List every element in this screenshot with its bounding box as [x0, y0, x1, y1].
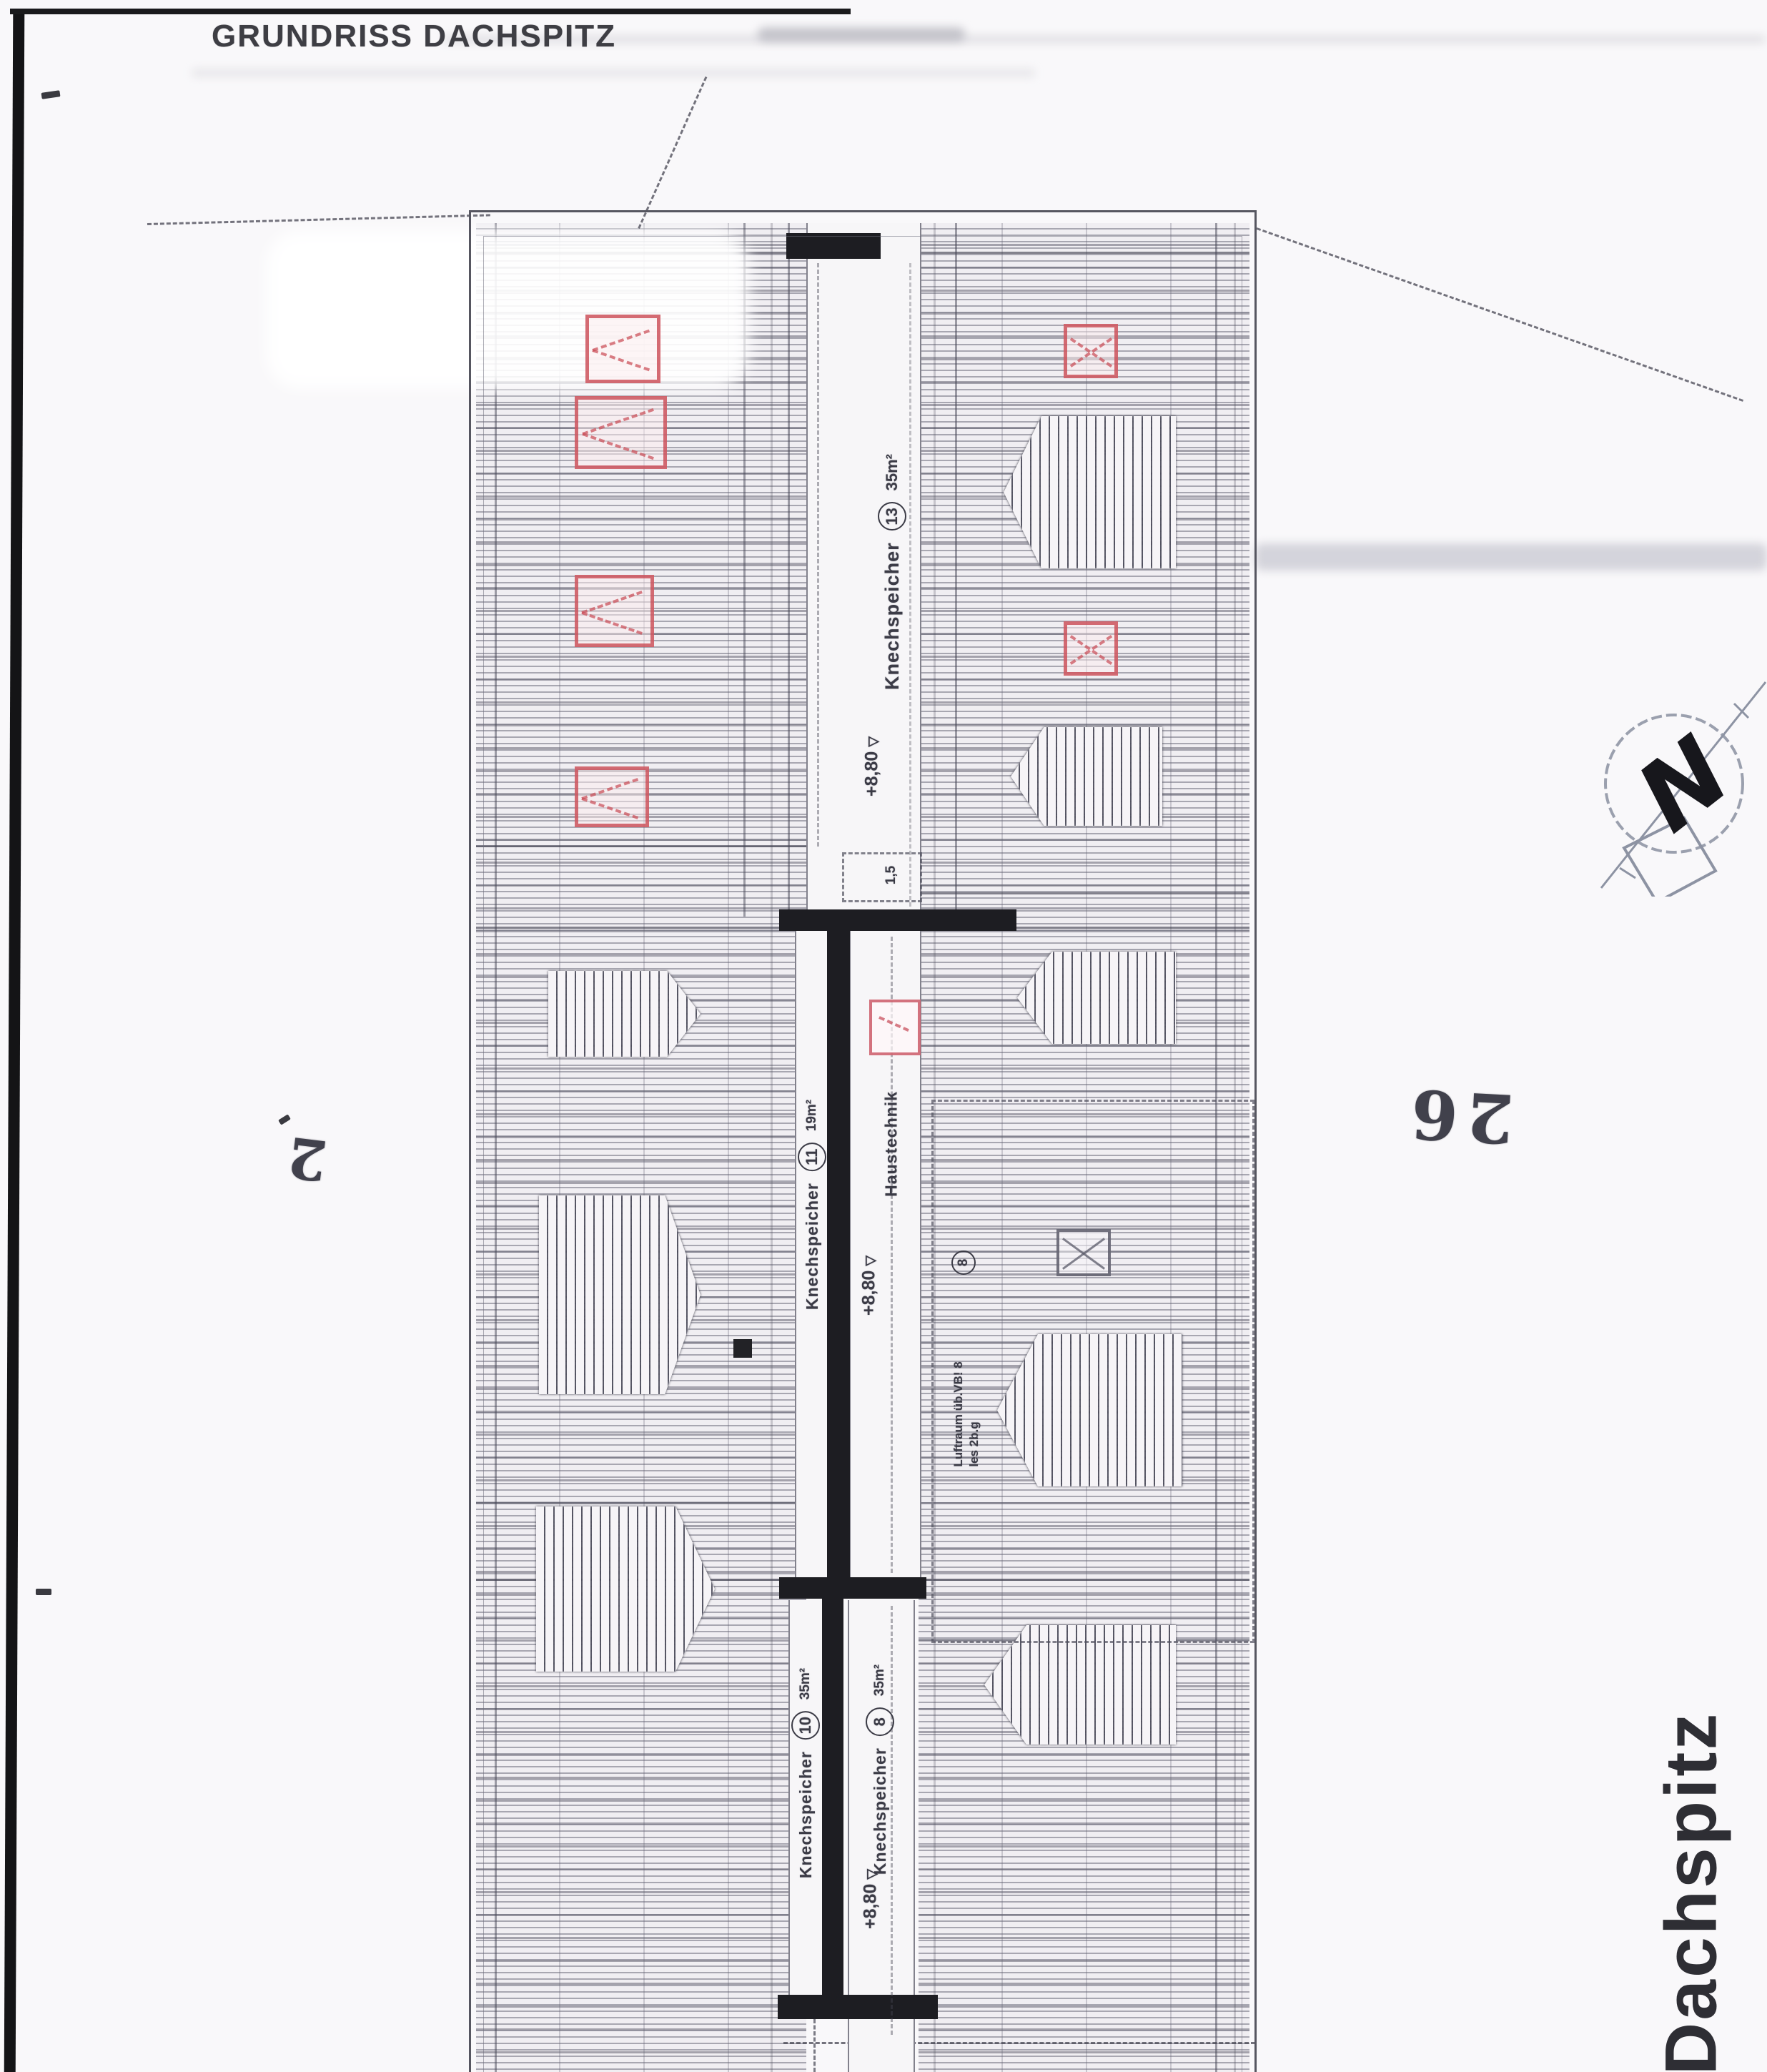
scanned-plan-page: Knechspeicher 13 35m² +8,80▽ Knechspeich…: [0, 0, 1767, 2072]
scan-mark: [36, 1589, 51, 1595]
haustechnik-shaft-red: [869, 1000, 921, 1055]
level-triangle-icon: ▽: [865, 1869, 880, 1880]
north-tick: [1620, 868, 1635, 878]
title-leader-line: [638, 77, 707, 229]
scan-mark: [41, 90, 61, 99]
room-number-circle: 8: [866, 1707, 894, 1736]
room-area: 35m²: [883, 454, 901, 490]
boundary-dashed-line: [147, 214, 490, 225]
room-name: Haustechnik: [882, 1091, 901, 1197]
room-number-circle: 10: [791, 1711, 820, 1740]
roof-marker: 8: [951, 1250, 976, 1275]
north-letter: N: [1617, 715, 1750, 853]
level-triangle-icon: ▽: [866, 736, 881, 747]
room-name: Knechspeicher: [803, 1183, 822, 1310]
scan-streak: [1255, 543, 1767, 571]
luftraum-line2: les 2b.g: [966, 1361, 982, 1466]
level-value: +8,80: [862, 751, 882, 796]
level-value: +8,80: [859, 1271, 879, 1316]
room-area: 19m²: [804, 1100, 820, 1131]
room-name: Knechspeicher: [881, 542, 904, 690]
room-number-circle: 11: [798, 1143, 826, 1171]
level-mark: +8,80▽: [859, 1255, 880, 1316]
scan-edge-left: [4, 14, 25, 2072]
roof-marker-circle: 8: [951, 1250, 976, 1275]
room-label-knechspeicher-low-left: Knechspeicher 10 35m²: [791, 1668, 820, 1878]
room-number-circle: 13: [878, 502, 906, 531]
drawing-title: GRUNDRISS DACHSPITZ: [212, 19, 616, 54]
room-area: 35m²: [872, 1664, 888, 1696]
level-mark: +8,80▽: [861, 1869, 881, 1929]
room-label-haustechnik: Haustechnik: [882, 1091, 901, 1197]
north-arrow: N: [1594, 676, 1767, 897]
handwritten-number-right: 26: [1401, 1073, 1515, 1158]
room-label-knechspeicher-mid: Knechspeicher 11 19m²: [798, 1100, 826, 1310]
boundary-dashed-line: [1256, 227, 1743, 402]
room-name: Knechspeicher: [871, 1747, 890, 1875]
plan-inner-outline: [483, 236, 1242, 2072]
luftraum-label: Luftraum üb.VB! 8 les 2b.g: [951, 1361, 982, 1466]
scan-mark: [278, 1114, 291, 1125]
sheet-label: Dachspitz: [1650, 1712, 1733, 2072]
scan-edge-top: [10, 9, 851, 14]
level-mark: +8,80▽: [862, 736, 883, 796]
room-area: 35m²: [798, 1668, 813, 1699]
room-label-knechspeicher-low-right: Knechspeicher 8 35m²: [866, 1664, 894, 1875]
room-name: Knechspeicher: [796, 1751, 816, 1878]
junction-note-text: 1,5: [883, 866, 899, 884]
luftraum-line1: Luftraum üb.VB! 8: [951, 1361, 966, 1466]
scan-streak: [758, 27, 965, 41]
junction-note: 1,5: [883, 866, 899, 884]
scan-streak: [443, 36, 1766, 43]
handwritten-number-left: 2: [284, 1124, 331, 1193]
level-triangle-icon: ▽: [863, 1255, 878, 1266]
scan-streak: [192, 69, 1035, 77]
level-value: +8,80: [861, 1884, 881, 1929]
room-label-knechspeicher-top: Knechspeicher 13 35m²: [878, 454, 906, 690]
